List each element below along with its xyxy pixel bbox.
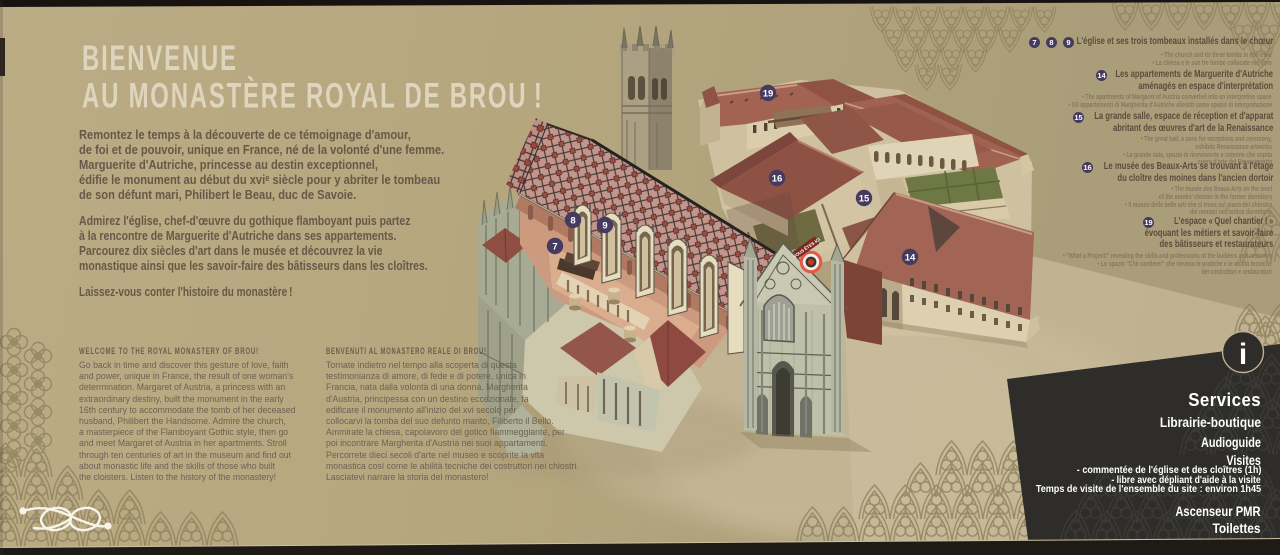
svg-text:7: 7 [552,241,557,252]
svg-text:14: 14 [905,252,916,263]
svg-text:15: 15 [859,193,870,204]
svg-text:19: 19 [763,88,774,99]
svg-text:16: 16 [772,173,783,184]
svg-text:8: 8 [570,215,575,226]
svg-text:9: 9 [602,220,607,231]
